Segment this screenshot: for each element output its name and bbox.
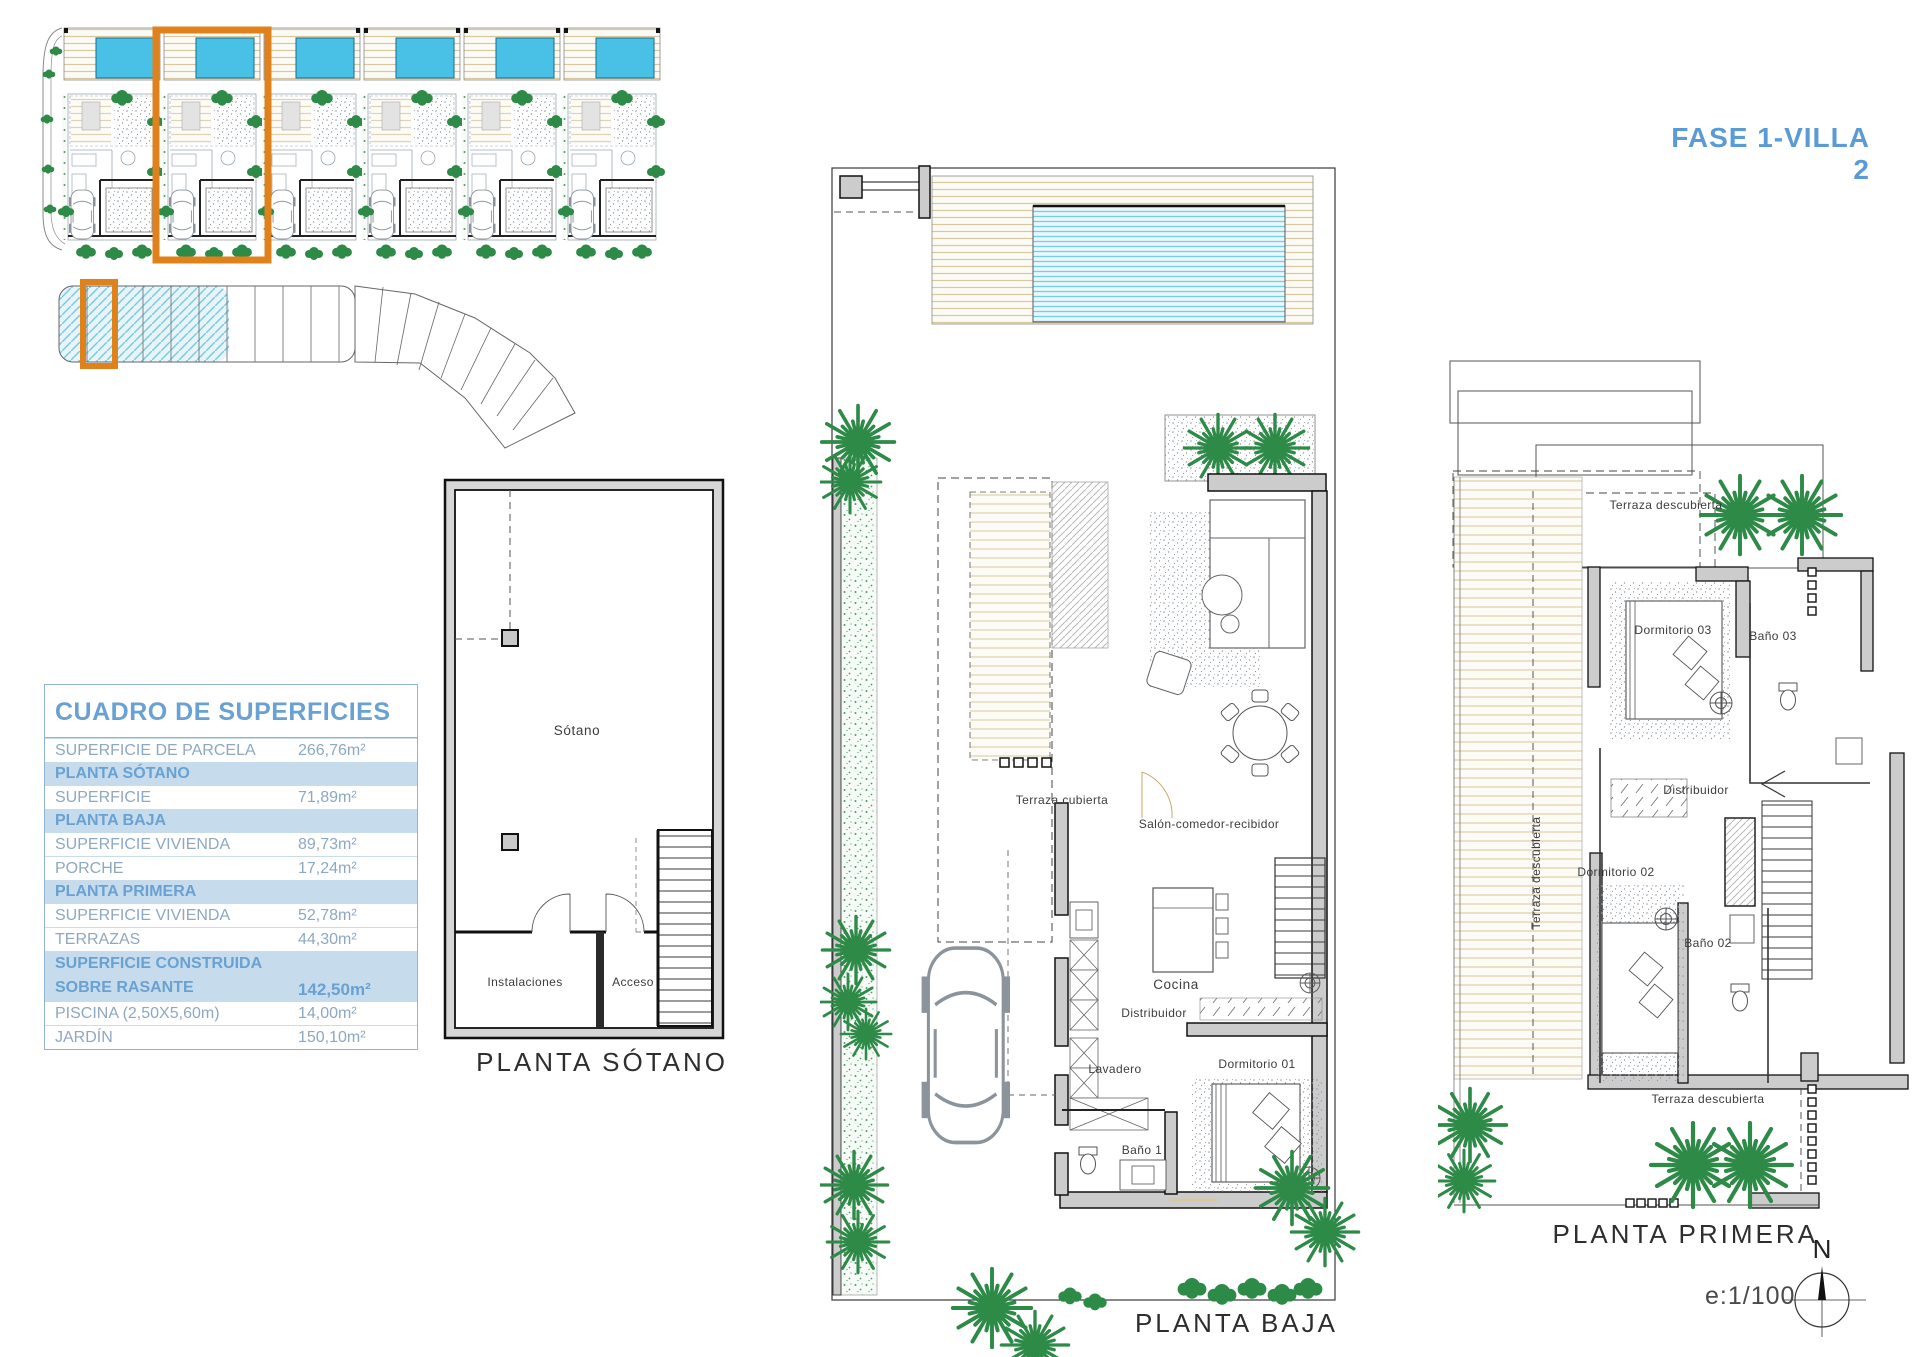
table-row: SUPERFICIE 71,89m²: [45, 785, 417, 809]
stairs: [658, 830, 712, 1026]
table-row: PORCHE 17,24m²: [45, 856, 417, 880]
north-needle: [1818, 1266, 1826, 1300]
pergola: [970, 492, 1050, 760]
site-plan-drawing: [35, 18, 695, 458]
table-section-row: PLANTA SÓTANO: [45, 762, 417, 785]
room-label-terraza-left: Terraza descubierta: [1529, 817, 1543, 930]
plan-title-baja: PLANTA BAJA: [1135, 1308, 1338, 1338]
ground-floor-plan-drawing: Terraza cubierta Salón-comedor-recibidor…: [820, 160, 1380, 1357]
villa-row: [58, 28, 665, 260]
room-label-cocina: Cocina: [1153, 977, 1199, 992]
partition-wall: [596, 932, 604, 1028]
north-label: N: [1813, 1236, 1832, 1264]
stairs: [1275, 858, 1325, 978]
direction-arrow: [1762, 771, 1785, 797]
room-label-dormitorio-03: Dormitorio 03: [1634, 623, 1711, 637]
room-label-acceso: Acceso: [612, 975, 654, 989]
coffee-table: [1202, 575, 1242, 615]
column: [502, 834, 518, 850]
room-label-dormitorio-01: Dormitorio 01: [1218, 1057, 1295, 1071]
table-row: PISCINA (2,50X5,60m) 14,00m²: [45, 1001, 417, 1025]
room-label-bano-1: Baño 1: [1122, 1143, 1162, 1157]
table-row: SUPERFICIE DE PARCELA 266,76m²: [45, 738, 417, 762]
table-row: SUPERFICIE VIVIENDA 52,78m²: [45, 903, 417, 927]
room-label-terraza-cubierta: Terraza cubierta: [1016, 793, 1108, 807]
table-section-row: PLANTA PRIMERA: [45, 880, 417, 903]
bed: [1626, 601, 1722, 719]
room-label-sotano: Sótano: [554, 723, 600, 738]
stairs: [1762, 801, 1812, 979]
bathroom-sink: [1730, 915, 1754, 943]
dining-table: [1220, 690, 1300, 776]
room-label-distribuidor: Distribuidor: [1121, 1006, 1187, 1020]
table-total-row: SUPERFICIE CONSTRUIDA SOBRE RASANTE 142,…: [45, 951, 417, 1001]
table-row: TERRAZAS 44,30m²: [45, 927, 417, 951]
surfaces-table: CUADRO DE SUPERFICIES SUPERFICIE DE PARC…: [44, 684, 418, 1050]
street-edge: [41, 28, 65, 250]
column: [502, 630, 518, 646]
shutter-squares: [1808, 568, 1816, 615]
parking-strip: [59, 282, 575, 448]
room-label-bano-03: Baño 03: [1749, 629, 1797, 643]
basement-plan-drawing: Sótano Instalaciones Acceso PLANTA SÓTAN…: [440, 472, 745, 1082]
room-label-dormitorio-02: Dormitorio 02: [1577, 865, 1654, 879]
scale-label: e:1/100: [1705, 1282, 1795, 1311]
kitchen-island: [1153, 888, 1213, 972]
room-label-bano-02: Baño 02: [1684, 936, 1732, 950]
surfaces-table-title: CUADRO DE SUPERFICIES: [45, 685, 417, 738]
table-section-row: PLANTA BAJA: [45, 809, 417, 832]
room-label-salon: Salón-comedor-recibidor: [1139, 817, 1280, 831]
first-floor-plan-drawing: Terraza descubierta Terraza descubierta …: [1438, 353, 1920, 1263]
bed: [1602, 923, 1678, 1053]
room-label-lavadero: Lavadero: [1088, 1062, 1141, 1076]
room-label-terraza-bottom: Terraza descubierta: [1652, 1092, 1765, 1106]
door-swing: [1142, 772, 1172, 818]
pergola-strip: [1454, 477, 1582, 1079]
sheet-title: FASE 1-VILLA 2: [1655, 122, 1870, 186]
swimming-pool: [1033, 206, 1285, 322]
bathroom-sink: [1836, 738, 1862, 764]
table-row: SUPERFICIE VIVIENDA 89,73m²: [45, 832, 417, 856]
plan-title-sotano: PLANTA SÓTANO: [476, 1047, 728, 1077]
room-label-terraza-top: Terraza descubierta: [1610, 498, 1723, 512]
room-label-distribuidor: Distribuidor: [1663, 783, 1729, 797]
table-row: JARDÍN 150,10m²: [45, 1025, 417, 1049]
closets: [1070, 940, 1148, 1130]
floorplan-sheet: FASE 1-VILLA 2 CUADRO DE SUPERFICIES SUP…: [0, 0, 1920, 1357]
room-label-instalaciones: Instalaciones: [487, 975, 562, 989]
